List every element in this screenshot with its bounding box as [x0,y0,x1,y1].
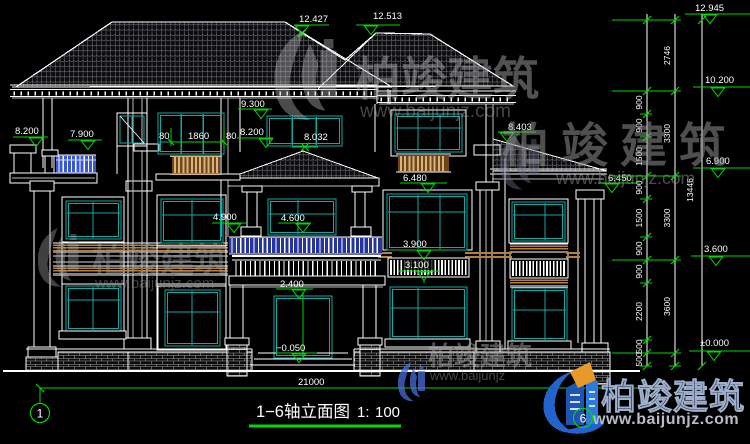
svg-text:8.032: 8.032 [304,132,328,143]
svg-text:80: 80 [226,131,237,142]
svg-text:900: 900 [634,264,644,278]
svg-text:1−6轴立面图: 1−6轴立面图 [256,402,350,421]
svg-text:80: 80 [159,131,170,142]
svg-text:3.600: 3.600 [704,244,728,255]
svg-text:900: 900 [634,95,644,109]
svg-text:900: 900 [634,241,644,255]
svg-text:www.baijunjz.com: www.baijunjz.com [555,168,695,188]
svg-text:21000: 21000 [298,377,324,388]
svg-text:500: 500 [634,339,644,353]
svg-text:4.600: 4.600 [281,213,305,224]
svg-text:1500: 1500 [634,208,644,227]
svg-text:2.400: 2.400 [280,279,304,290]
svg-text:www.baijunjz.com: www.baijunjz.com [94,275,214,292]
svg-text:6: 6 [580,412,587,426]
svg-text:柏竣建筑: 柏竣建筑 [355,53,539,105]
svg-text:3600: 3600 [662,297,672,316]
svg-text:www.baijunjz.com: www.baijunjz.com [592,411,739,428]
svg-text:www.baijunjz: www.baijunjz [429,368,505,383]
svg-text:500: 500 [634,352,644,366]
svg-text:12.427: 12.427 [299,14,328,25]
svg-text:−0.050: −0.050 [276,343,305,354]
svg-text:2200: 2200 [634,302,644,321]
svg-text:1:: 1: [357,404,370,421]
svg-text:10.200: 10.200 [705,75,734,86]
svg-text:1: 1 [37,407,44,421]
svg-text:2746: 2746 [662,46,672,65]
svg-text:柏竣建筑: 柏竣建筑 [502,119,738,172]
svg-text:7.900: 7.900 [70,129,94,140]
svg-text:12.513: 12.513 [373,11,402,22]
svg-text:8.200: 8.200 [15,126,39,137]
svg-text:3.100: 3.100 [405,260,429,271]
svg-text:8.200: 8.200 [240,127,264,138]
svg-text:100: 100 [375,404,400,421]
svg-text:±0.000: ±0.000 [700,338,729,349]
svg-text:12.945: 12.945 [695,3,724,14]
svg-text:1860: 1860 [188,131,209,142]
svg-text:9.300: 9.300 [241,99,265,110]
svg-text:柏竣建筑: 柏竣建筑 [428,341,532,371]
svg-text:3300: 3300 [662,208,672,227]
svg-text:4.900: 4.900 [213,212,237,223]
svg-text:3.900: 3.900 [403,239,427,250]
svg-text:6.480: 6.480 [403,173,427,184]
svg-text:www.baijunjz.com: www.baijunjz.com [359,101,511,122]
